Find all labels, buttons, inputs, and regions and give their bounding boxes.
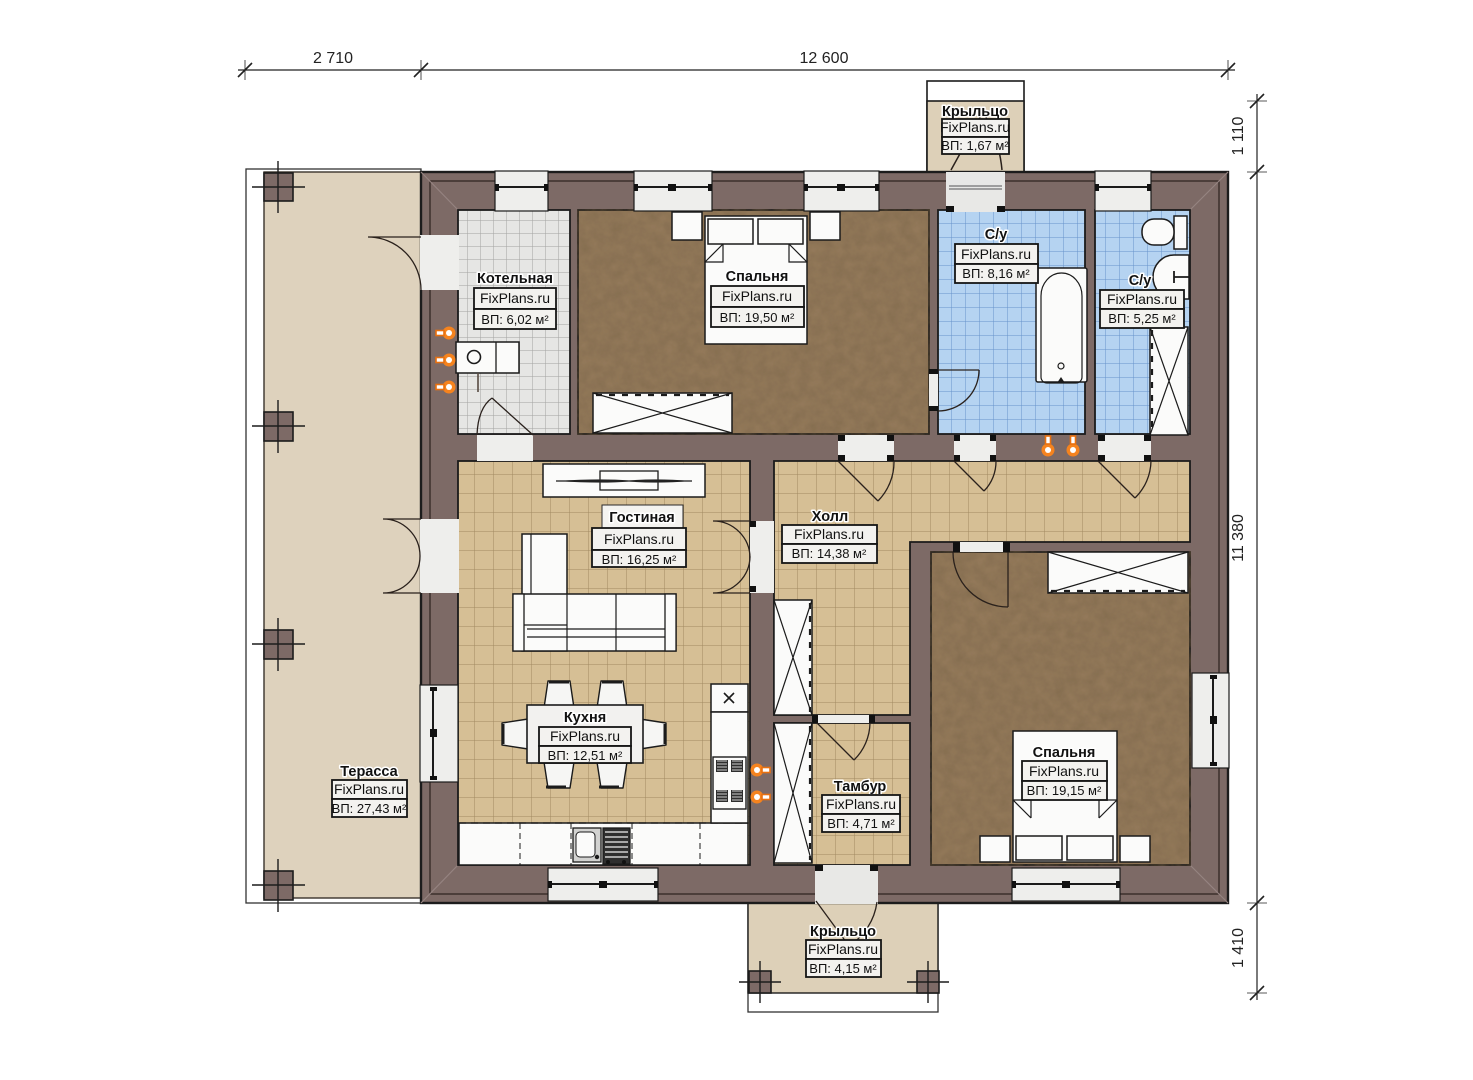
svg-text:Спальня: Спальня (726, 269, 789, 285)
svg-text:ВП: 14,38 м²: ВП: 14,38 м² (792, 546, 867, 561)
svg-text:С/у: С/у (1129, 273, 1152, 289)
svg-text:Спальня: Спальня (1033, 745, 1096, 761)
svg-text:FixPlans.ru: FixPlans.ru (794, 526, 864, 542)
svg-text:ВП: 1,67 м²: ВП: 1,67 м² (941, 138, 1009, 153)
svg-text:Кухня: Кухня (564, 710, 606, 726)
svg-text:FixPlans.ru: FixPlans.ru (808, 941, 878, 957)
svg-text:FixPlans.ru: FixPlans.ru (722, 288, 792, 304)
svg-text:ВП: 8,16 м²: ВП: 8,16 м² (962, 266, 1030, 281)
svg-text:1 110: 1 110 (1230, 116, 1247, 155)
svg-text:ВП: 19,50 м²: ВП: 19,50 м² (720, 310, 795, 325)
svg-text:ВП: 5,25 м²: ВП: 5,25 м² (1108, 311, 1176, 326)
svg-text:1 410: 1 410 (1230, 928, 1247, 968)
svg-text:FixPlans.ru: FixPlans.ru (550, 728, 620, 744)
svg-text:11 380: 11 380 (1230, 514, 1247, 562)
svg-text:Тамбур: Тамбур (834, 779, 887, 795)
svg-text:ВП: 27,43 м²: ВП: 27,43 м² (332, 801, 407, 816)
svg-text:FixPlans.ru: FixPlans.ru (334, 781, 404, 797)
svg-text:Холл: Холл (812, 509, 848, 525)
svg-text:С/у: С/у (985, 227, 1008, 243)
svg-text:Крыльцо: Крыльцо (810, 924, 876, 940)
svg-text:FixPlans.ru: FixPlans.ru (1107, 291, 1177, 307)
svg-text:FixPlans.ru: FixPlans.ru (961, 246, 1031, 262)
svg-text:Терасса: Терасса (340, 764, 398, 780)
svg-text:Крыльцо: Крыльцо (942, 104, 1008, 120)
svg-text:Котельная: Котельная (477, 271, 553, 287)
svg-text:ВП: 12,51 м²: ВП: 12,51 м² (548, 748, 623, 763)
svg-text:Гостиная: Гостиная (609, 510, 675, 526)
svg-text:ВП: 4,15 м²: ВП: 4,15 м² (809, 961, 877, 976)
svg-text:FixPlans.ru: FixPlans.ru (940, 119, 1010, 135)
svg-text:12 600: 12 600 (800, 50, 849, 67)
svg-text:FixPlans.ru: FixPlans.ru (1029, 763, 1099, 779)
svg-text:2 710: 2 710 (313, 50, 353, 67)
svg-text:FixPlans.ru: FixPlans.ru (826, 796, 896, 812)
svg-text:ВП: 4,71 м²: ВП: 4,71 м² (827, 816, 895, 831)
svg-text:FixPlans.ru: FixPlans.ru (604, 531, 674, 547)
svg-text:ВП: 6,02 м²: ВП: 6,02 м² (481, 312, 549, 327)
svg-text:ВП: 16,25 м²: ВП: 16,25 м² (602, 552, 677, 567)
svg-text:ВП: 19,15 м²: ВП: 19,15 м² (1027, 783, 1102, 798)
svg-text:FixPlans.ru: FixPlans.ru (480, 290, 550, 306)
